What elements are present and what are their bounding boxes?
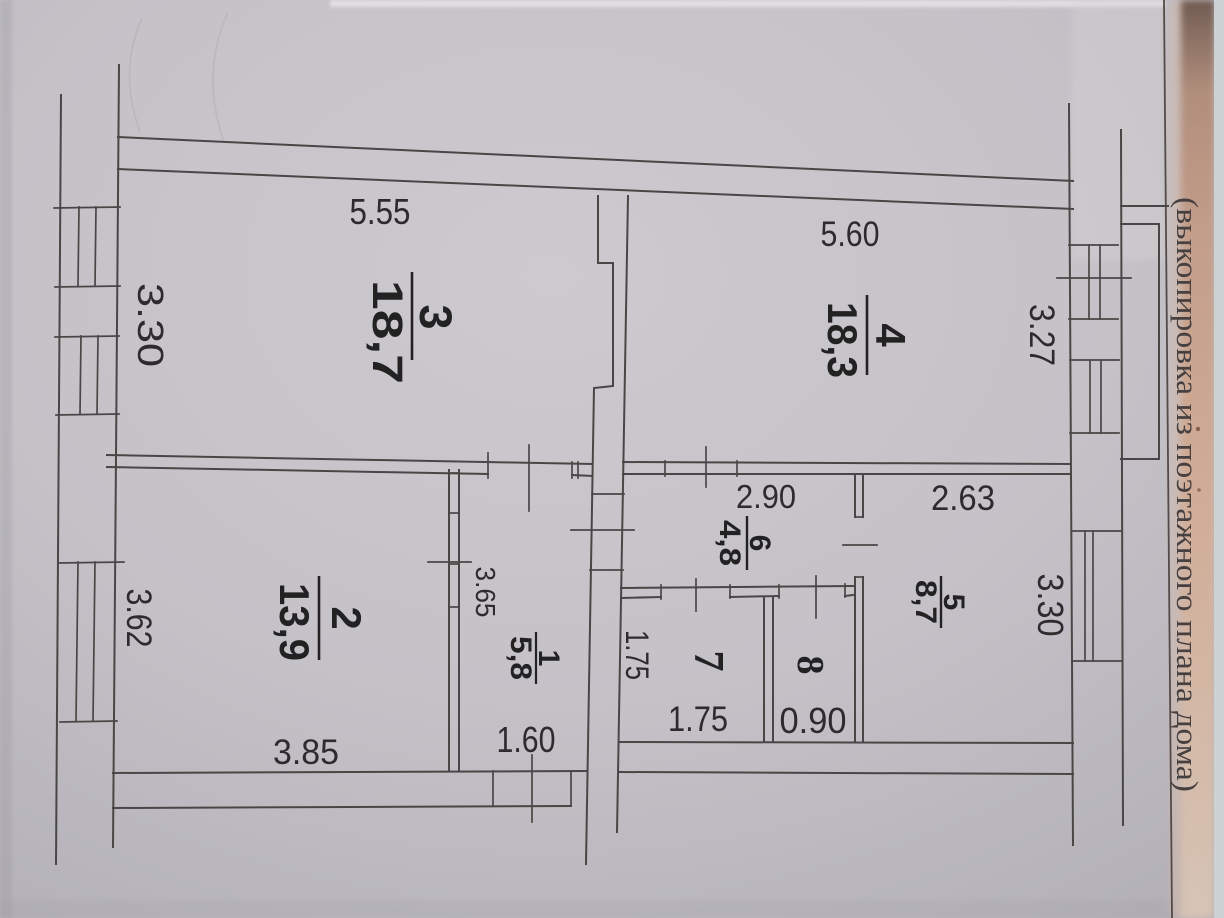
svg-text:3.62: 3.62 <box>119 589 158 648</box>
svg-text:13,9: 13,9 <box>271 583 318 661</box>
svg-text:2.63: 2.63 <box>931 479 995 518</box>
svg-text:18,7: 18,7 <box>363 280 411 384</box>
svg-text:5.55: 5.55 <box>350 191 411 232</box>
svg-text:1.60: 1.60 <box>497 719 556 760</box>
svg-text:(выкопировка из поэтажного пла: (выкопировка из поэтажного плана дома) <box>1170 197 1205 792</box>
svg-text:3.30: 3.30 <box>1030 574 1071 637</box>
svg-text:2: 2 <box>323 606 370 629</box>
svg-text:4: 4 <box>867 323 914 347</box>
svg-text:0.90: 0.90 <box>780 700 847 741</box>
svg-text:2.90: 2.90 <box>736 478 796 515</box>
svg-text:5.60: 5.60 <box>821 215 880 254</box>
svg-text:8: 8 <box>789 656 831 675</box>
svg-text:3.65: 3.65 <box>470 567 501 618</box>
svg-text:5,8: 5,8 <box>504 636 537 680</box>
svg-text:8,7: 8,7 <box>909 580 942 624</box>
svg-text:7: 7 <box>685 651 731 672</box>
svg-text:3.27: 3.27 <box>1022 304 1061 366</box>
svg-text:18,3: 18,3 <box>819 302 866 378</box>
svg-text:1.75: 1.75 <box>668 700 728 739</box>
svg-text:1.75: 1.75 <box>619 630 655 680</box>
svg-text:3.30: 3.30 <box>130 283 171 367</box>
svg-text:3.85: 3.85 <box>273 733 339 772</box>
svg-text:3: 3 <box>410 304 461 329</box>
svg-text:4,8: 4,8 <box>713 520 746 566</box>
